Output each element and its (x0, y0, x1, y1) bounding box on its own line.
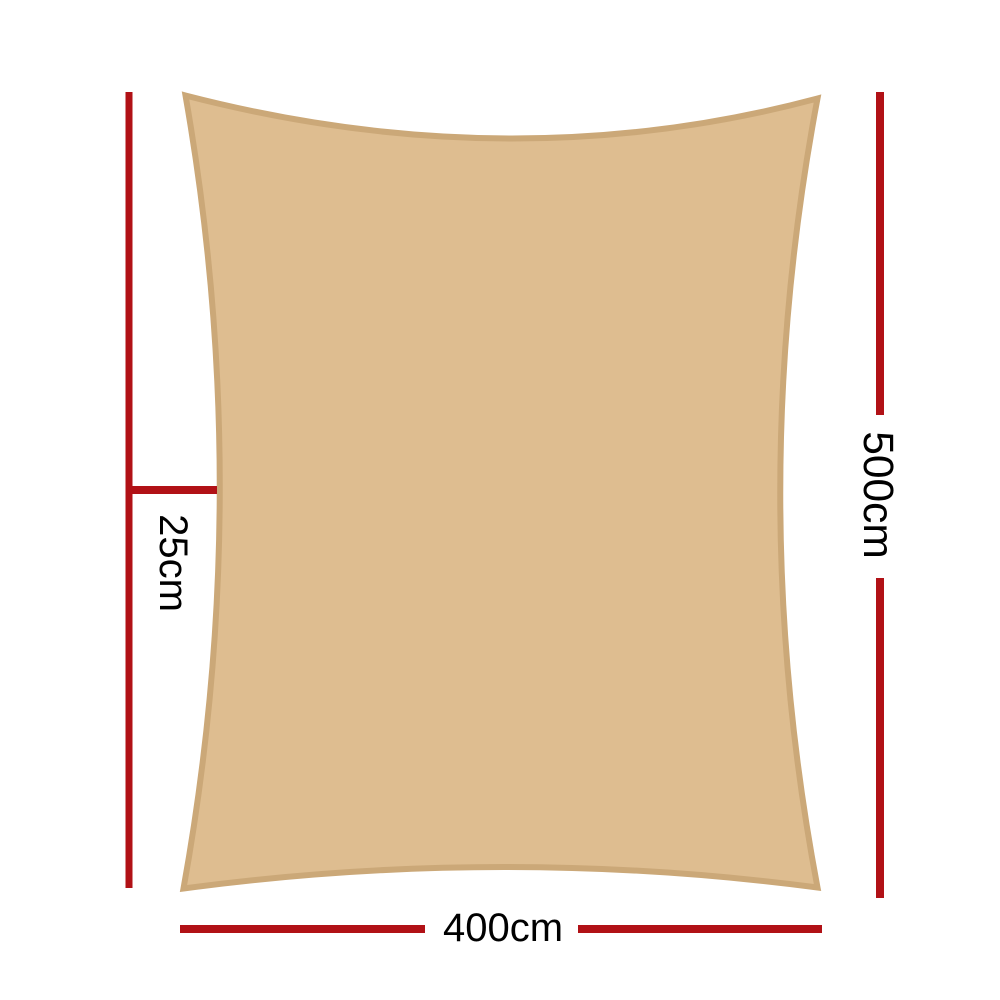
svg-text:400cm: 400cm (443, 906, 563, 950)
svg-text:25cm: 25cm (151, 514, 195, 612)
svg-text:500cm: 500cm (854, 431, 901, 559)
